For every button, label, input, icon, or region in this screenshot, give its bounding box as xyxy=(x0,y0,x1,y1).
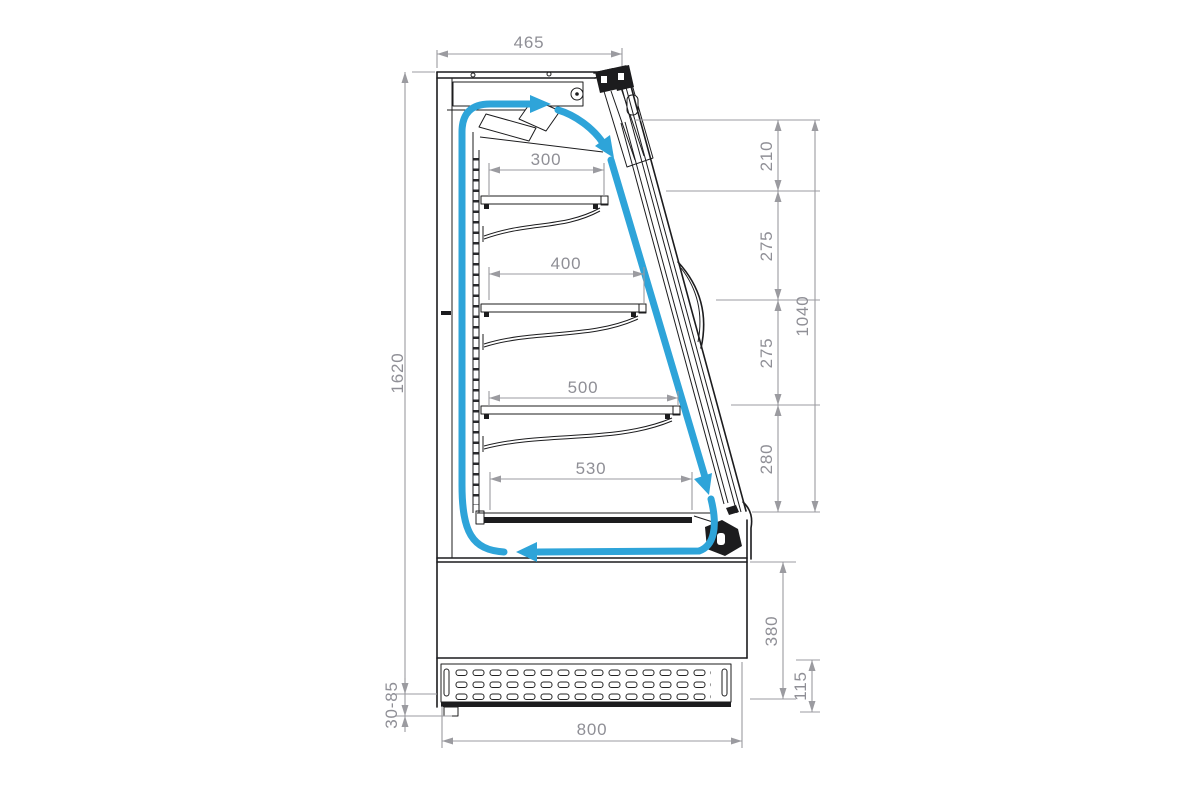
dim-label: 1620 xyxy=(388,352,407,393)
shelf-300 xyxy=(481,196,608,242)
shelf-front-pin xyxy=(593,204,598,209)
dim-label: 210 xyxy=(757,141,776,172)
intake-slot xyxy=(717,533,725,545)
dim-label: 800 xyxy=(577,720,608,739)
dim-label: 115 xyxy=(791,671,810,701)
shelf-board xyxy=(481,304,646,312)
dim-feet-range: 30-85 xyxy=(382,678,405,732)
dim-label: 30-85 xyxy=(382,681,401,728)
dim-right-stack: 210 275 275 280 1040 xyxy=(634,120,820,512)
airflow-discharge-path xyxy=(558,110,603,143)
grille-end-slot-left xyxy=(444,669,449,696)
dim-label: 280 xyxy=(757,444,776,475)
dim-label: 275 xyxy=(757,338,776,369)
shelf-rear-pin xyxy=(484,312,489,317)
dim-top-depth: 465 xyxy=(437,33,622,68)
shelf-board xyxy=(481,196,608,204)
air-duct-back-panel xyxy=(473,132,479,513)
hinge-clamp-right-slot xyxy=(618,73,624,80)
dim-label: 530 xyxy=(576,459,607,478)
dim-label: 275 xyxy=(757,231,776,262)
canopy-top-screw-left xyxy=(471,73,475,77)
dim-deck-530: 530 xyxy=(490,459,692,510)
dim-total-height: 1620 xyxy=(388,72,452,716)
shelf-rear-pin xyxy=(484,414,489,419)
plinth-bar xyxy=(441,702,731,707)
airflow-arrow-bottom-icon xyxy=(694,473,712,495)
canopy-screw-center xyxy=(575,92,579,96)
dim-label: 465 xyxy=(514,33,545,52)
display-case-cross-section: 465 1620 30-85 300 400 500 530 210 xyxy=(0,0,1200,800)
airflow-intake-path xyxy=(538,499,714,552)
glass-inner-pane xyxy=(621,122,728,504)
dim-label: 500 xyxy=(568,378,599,397)
vent-grille-slots xyxy=(455,667,711,702)
adjustable-foot xyxy=(444,707,458,716)
dim-plinth-height: 115 xyxy=(791,660,820,712)
deck-surface-bar xyxy=(484,517,692,523)
grille-end-slot-right xyxy=(722,669,727,696)
price-strip xyxy=(483,418,672,452)
glass-outer-surface xyxy=(629,79,746,511)
shelf-board xyxy=(481,406,680,414)
shelf-400 xyxy=(481,304,646,350)
dim-label: 400 xyxy=(551,254,582,273)
hinge-clamp-left-slot xyxy=(601,76,607,83)
glass-front xyxy=(620,79,746,513)
shelf-front-pin xyxy=(631,312,636,317)
airflow-glass-path xyxy=(611,160,705,477)
glass-outer-pane xyxy=(620,80,741,513)
shelf-500 xyxy=(481,406,680,452)
dim-label: 380 xyxy=(762,616,781,647)
dim-shelf-500: 500 xyxy=(489,378,678,406)
price-strip xyxy=(483,208,600,242)
drawing-canvas: 465 1620 30-85 300 400 500 530 210 xyxy=(0,0,1200,800)
dim-base-height: 380 xyxy=(750,562,796,699)
perforated-panel-lines xyxy=(473,132,479,513)
shelf-rear-pin xyxy=(484,204,489,209)
shelf-front-pin xyxy=(665,414,670,419)
dim-label: 300 xyxy=(531,150,562,169)
airflow-arrow-left-icon xyxy=(516,542,537,562)
cabinet-back-wall xyxy=(437,72,452,707)
intake-clip xyxy=(726,505,739,515)
back-wall-joint-mark xyxy=(441,311,451,315)
compartment-top-lines xyxy=(437,558,747,562)
dim-shelf-400: 400 xyxy=(489,254,644,303)
dim-shelf-300: 300 xyxy=(489,150,604,196)
dim-label: 1040 xyxy=(793,295,812,336)
price-strip xyxy=(483,316,638,350)
canopy-top-lines xyxy=(437,72,600,78)
